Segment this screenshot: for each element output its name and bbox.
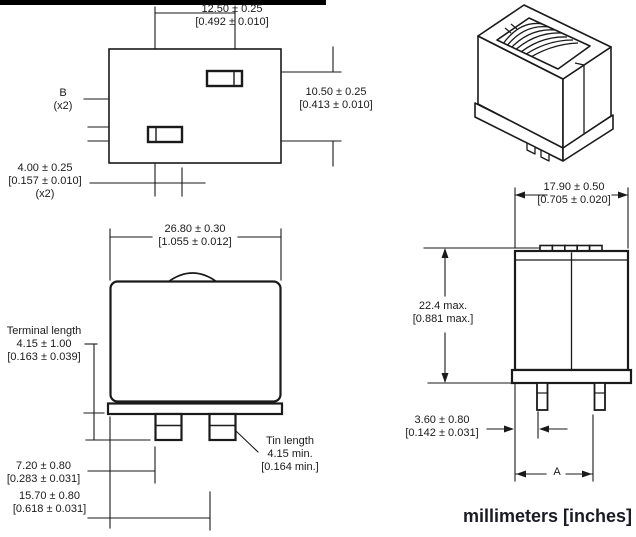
dim-sideview-pin-in: [0.142 ± 0.031] xyxy=(398,427,486,440)
label-terminal-length: Terminal length 4.15 ± 1.00 [0.163 ± 0.0… xyxy=(0,325,88,364)
dim-sideview-width-mm: 17.90 ± 0.50 xyxy=(528,181,620,194)
label-b-qty: (x2) xyxy=(42,100,84,113)
tin-length-mm: 4.15 min. xyxy=(253,448,327,461)
dim-frontview-pin1: 7.20 ± 0.80 [0.283 ± 0.031] xyxy=(0,460,87,486)
isometric-view-drawing xyxy=(475,5,613,161)
dim-topview-terminal: 4.00 ± 0.25 [0.157 ± 0.010] (x2) xyxy=(0,162,90,201)
dim-frontview-pin2: 15.70 ± 0.80 [0.618 ± 0.031] xyxy=(0,490,99,516)
dim-frontview-pin2-mm: 15.70 ± 0.80 xyxy=(0,490,99,503)
dim-topview-width: 12.50 ± 0.25 [0.492 ± 0.010] xyxy=(193,3,271,29)
dim-sideview-height: 22.4 max. [0.881 max.] xyxy=(403,300,483,326)
dim-topview-height-mm: 10.50 ± 0.25 xyxy=(290,86,382,99)
dim-frontview-width-mm: 26.80 ± 0.30 xyxy=(149,223,241,236)
dim-topview-height: 10.50 ± 0.25 [0.413 ± 0.010] xyxy=(290,86,382,112)
dim-sideview-width-in: [0.705 ± 0.020] xyxy=(528,194,620,207)
label-tin-length: Tin length 4.15 min. [0.164 min.] xyxy=(253,435,327,474)
dim-topview-width-mm: 12.50 ± 0.25 xyxy=(193,3,271,16)
dim-sideview-width: 17.90 ± 0.50 [0.705 ± 0.020] xyxy=(528,181,620,207)
tin-length-label: Tin length xyxy=(253,435,327,448)
dimension-drawing-page: 12.50 ± 0.25 [0.492 ± 0.010] 10.50 ± 0.2… xyxy=(0,0,636,537)
label-b-name: B xyxy=(42,87,84,100)
label-b: B (x2) xyxy=(42,87,84,113)
dim-frontview-pin2-in: [0.618 ± 0.031] xyxy=(0,503,99,516)
dim-topview-terminal-qty: (x2) xyxy=(0,188,90,201)
dim-topview-terminal-mm: 4.00 ± 0.25 xyxy=(0,162,90,175)
dim-sideview-pin-mm: 3.60 ± 0.80 xyxy=(398,414,486,427)
dim-topview-height-in: [0.413 ± 0.010] xyxy=(290,99,382,112)
tin-length-in: [0.164 min.] xyxy=(253,461,327,474)
dim-frontview-pin1-in: [0.283 ± 0.031] xyxy=(0,473,87,486)
dim-sideview-height-mm: 22.4 max. xyxy=(403,300,483,313)
terminal-length-in: [0.163 ± 0.039] xyxy=(0,351,88,364)
dim-topview-width-in: [0.492 ± 0.010] xyxy=(193,16,271,29)
top-border-bar xyxy=(0,0,326,5)
dim-sideview-pin: 3.60 ± 0.80 [0.142 ± 0.031] xyxy=(398,414,486,440)
units-note: millimeters [inches] xyxy=(463,506,632,526)
terminal-length-mm: 4.15 ± 1.00 xyxy=(0,338,88,351)
terminal-length-label: Terminal length xyxy=(0,325,88,338)
front-view-drawing xyxy=(84,229,282,530)
dim-topview-terminal-in: [0.157 ± 0.010] xyxy=(0,175,90,188)
label-a: A xyxy=(547,466,567,479)
dim-frontview-pin1-mm: 7.20 ± 0.80 xyxy=(0,460,87,473)
label-a-name: A xyxy=(547,466,567,479)
dim-frontview-width-in: [1.055 ± 0.012] xyxy=(149,236,241,249)
dim-frontview-width: 26.80 ± 0.30 [1.055 ± 0.012] xyxy=(149,223,241,249)
dim-sideview-height-in: [0.881 max.] xyxy=(403,313,483,326)
